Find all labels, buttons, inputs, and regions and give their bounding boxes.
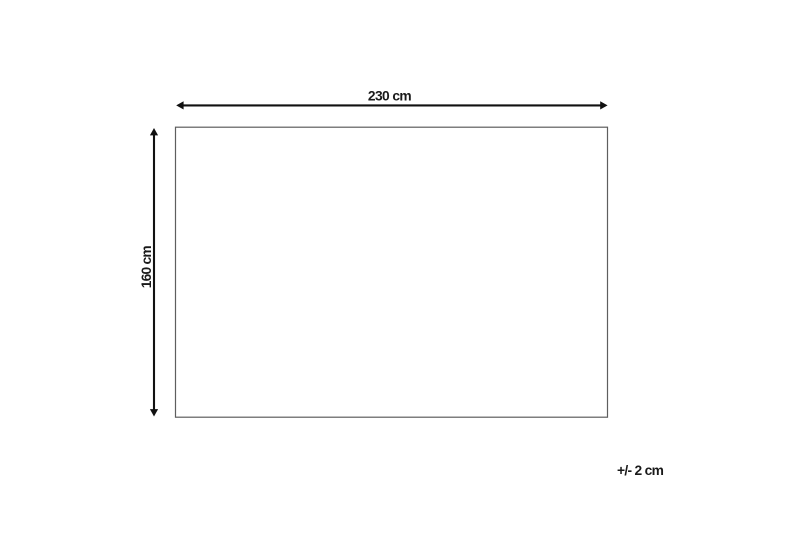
svg-text:160 cm: 160 cm bbox=[139, 246, 154, 289]
svg-text:230 cm: 230 cm bbox=[368, 89, 412, 104]
svg-text:+/- 2 cm: +/- 2 cm bbox=[617, 463, 664, 478]
